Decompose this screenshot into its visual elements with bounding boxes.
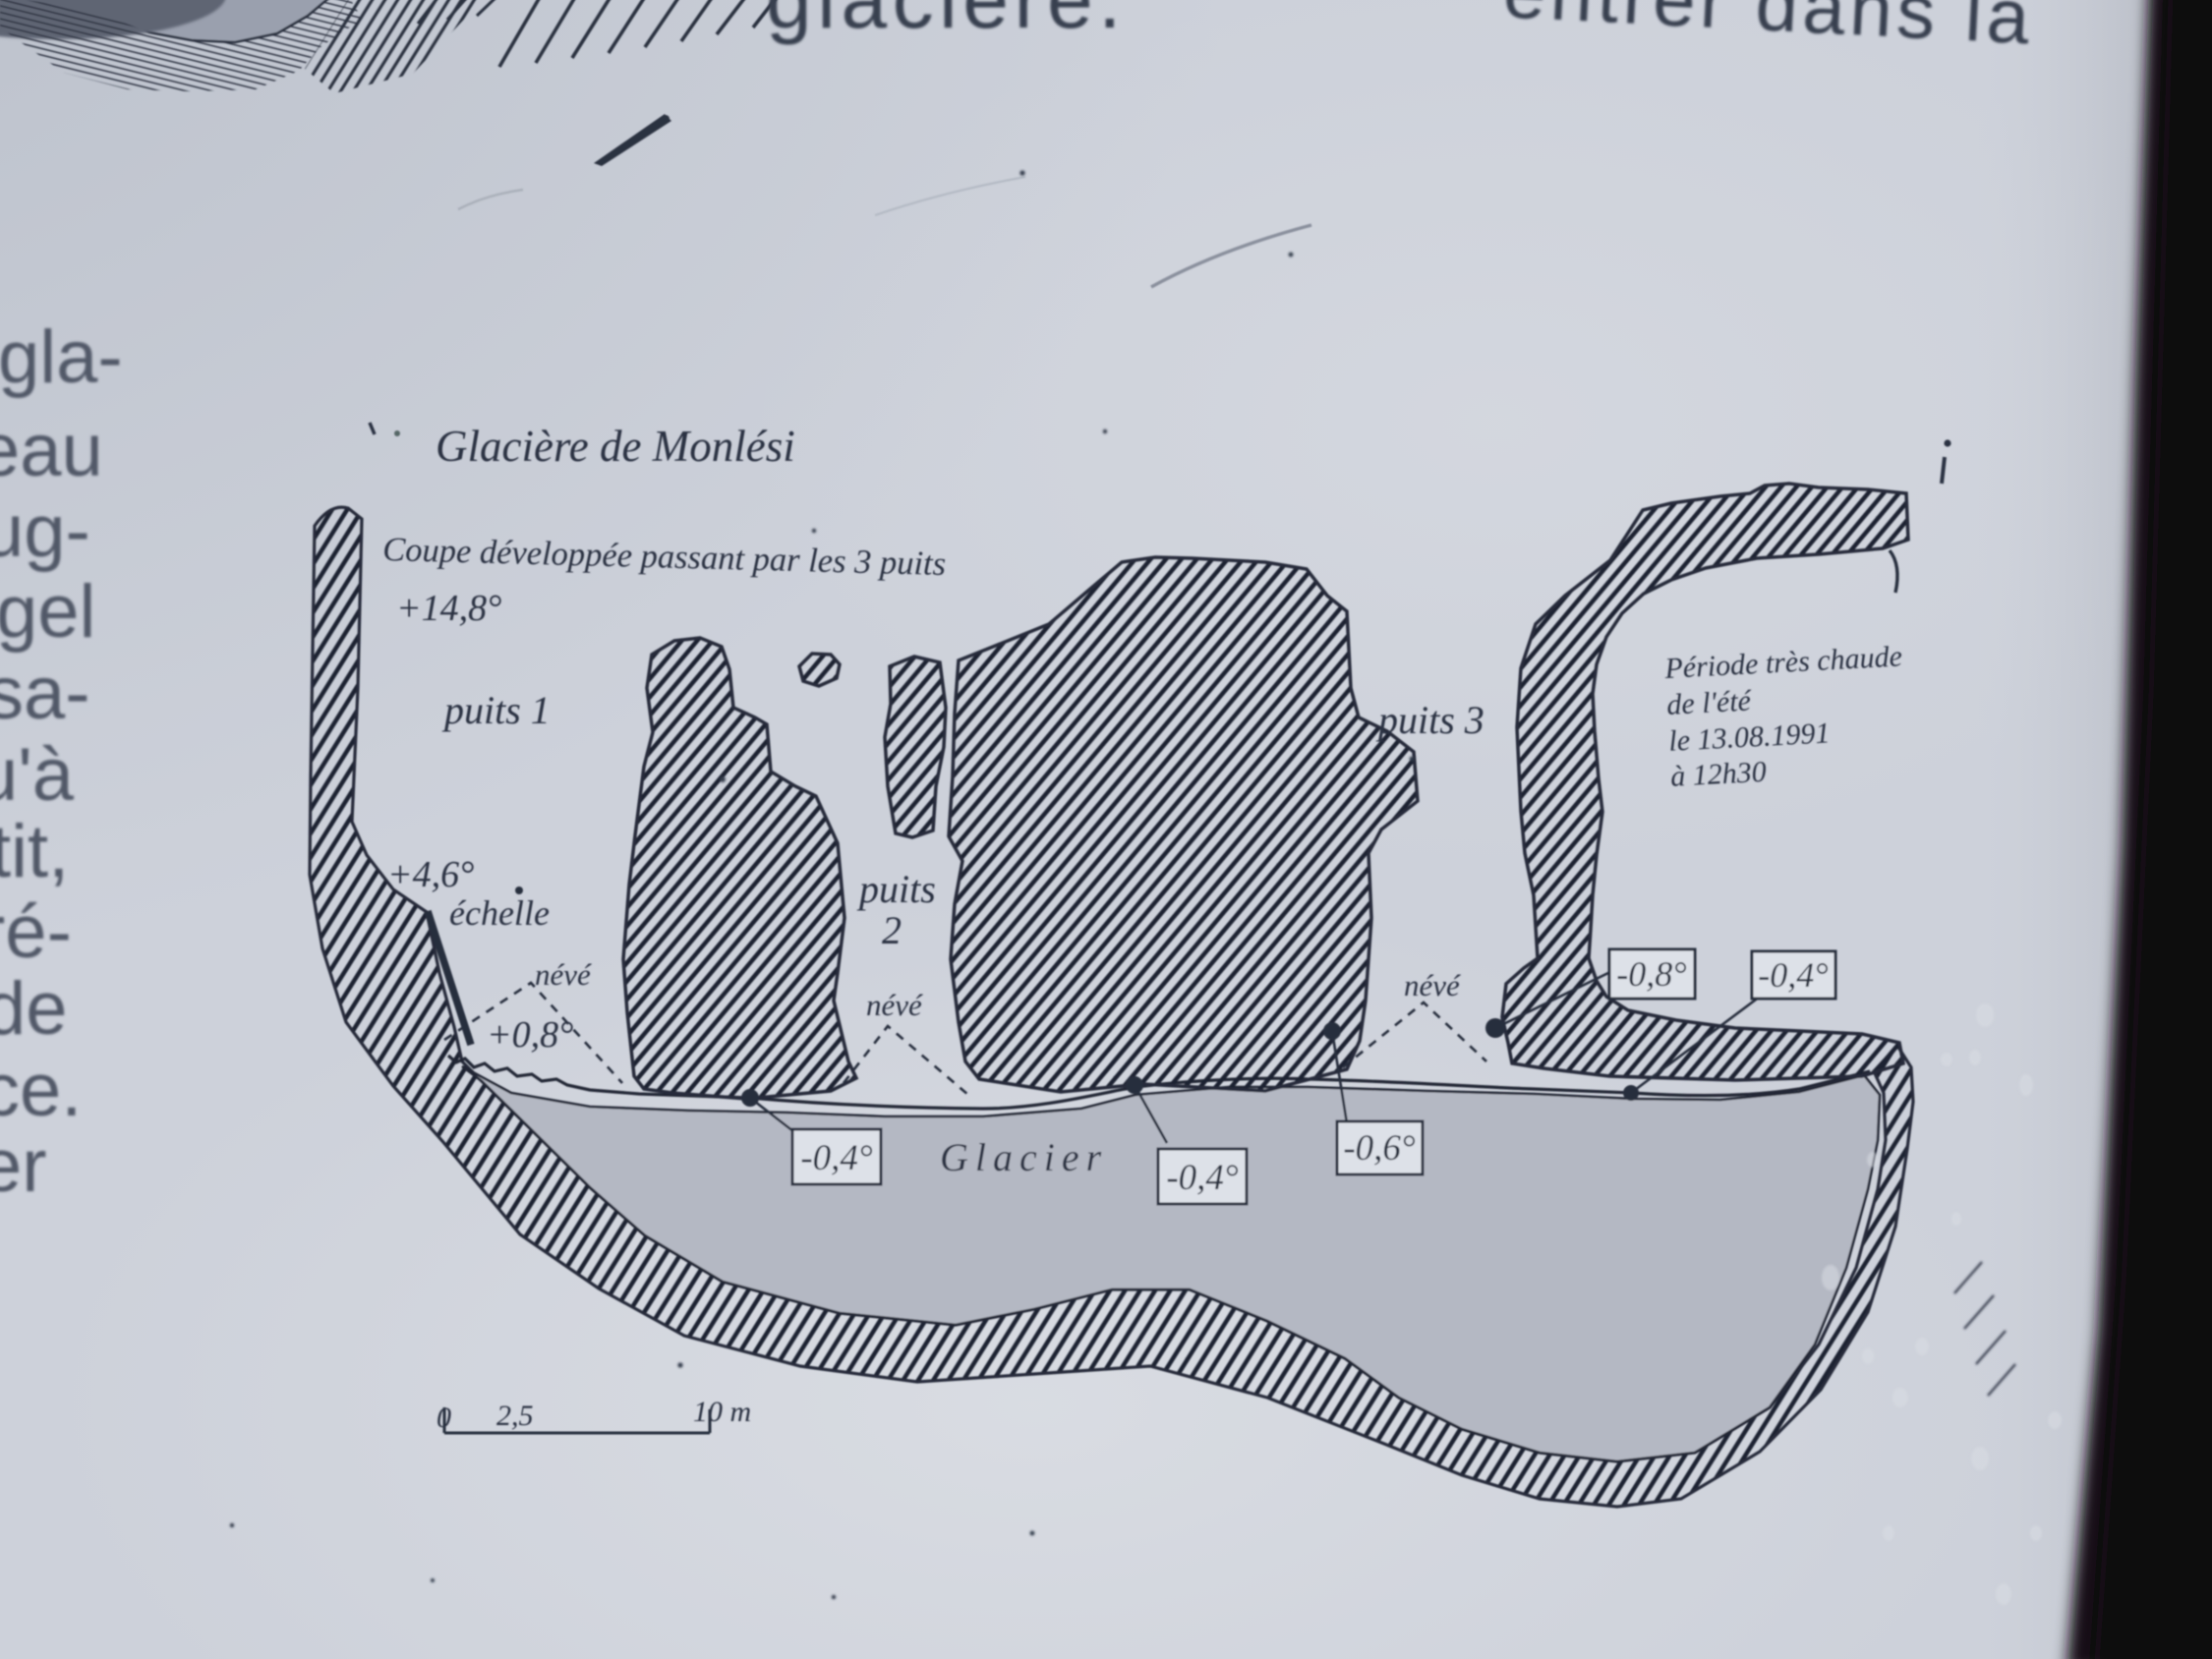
svg-text:puits 1: puits 1 (441, 688, 551, 732)
svg-text:à 12h30: à 12h30 (1669, 756, 1767, 793)
svg-text:0: 0 (437, 1402, 451, 1434)
svg-text:-0,8°: -0,8° (1616, 954, 1686, 994)
svg-text:glacière.: glacière. (766, 0, 1127, 45)
svg-text:eau: eau (0, 409, 103, 492)
svg-text:ce.: ce. (0, 1049, 82, 1132)
svg-text:10 m: 10 m (693, 1396, 751, 1428)
svg-text:u'à: u'à (0, 733, 75, 817)
svg-text:échelle: échelle (449, 893, 550, 933)
svg-text:-0,4°: -0,4° (1166, 1158, 1239, 1198)
svg-text:ug-: ug- (0, 489, 90, 573)
svg-text:Glacière de Monlési: Glacière de Monlési (436, 422, 795, 471)
svg-text:gla-: gla- (0, 315, 123, 399)
svg-text:-0,4°: -0,4° (800, 1138, 873, 1178)
svg-text:2: 2 (882, 908, 902, 952)
svg-text:puits 3: puits 3 (1375, 698, 1484, 742)
svg-text:+14,8°: +14,8° (396, 588, 501, 629)
svg-text:-0,4°: -0,4° (1758, 955, 1828, 995)
svg-text:Glacier: Glacier (940, 1135, 1108, 1179)
svg-text:tit,: tit, (0, 810, 69, 893)
svg-text:-0,6°: -0,6° (1343, 1128, 1416, 1169)
svg-text:gel: gel (0, 570, 95, 654)
svg-text:de l'été: de l'été (1666, 684, 1754, 721)
svg-text:er: er (0, 1124, 47, 1208)
svg-text:névé: névé (535, 957, 592, 992)
svg-text:puits: puits (856, 867, 936, 911)
svg-text:névé: névé (866, 988, 923, 1022)
svg-text:2,5: 2,5 (496, 1400, 534, 1432)
svg-text:+4,6°: +4,6° (387, 854, 474, 895)
svg-text:+0,8°: +0,8° (487, 1014, 573, 1056)
svg-text:sa-: sa- (0, 652, 90, 735)
svg-text:de: de (0, 967, 68, 1051)
svg-text:ré-: ré- (0, 890, 72, 974)
svg-text:névé: névé (1404, 968, 1461, 1002)
